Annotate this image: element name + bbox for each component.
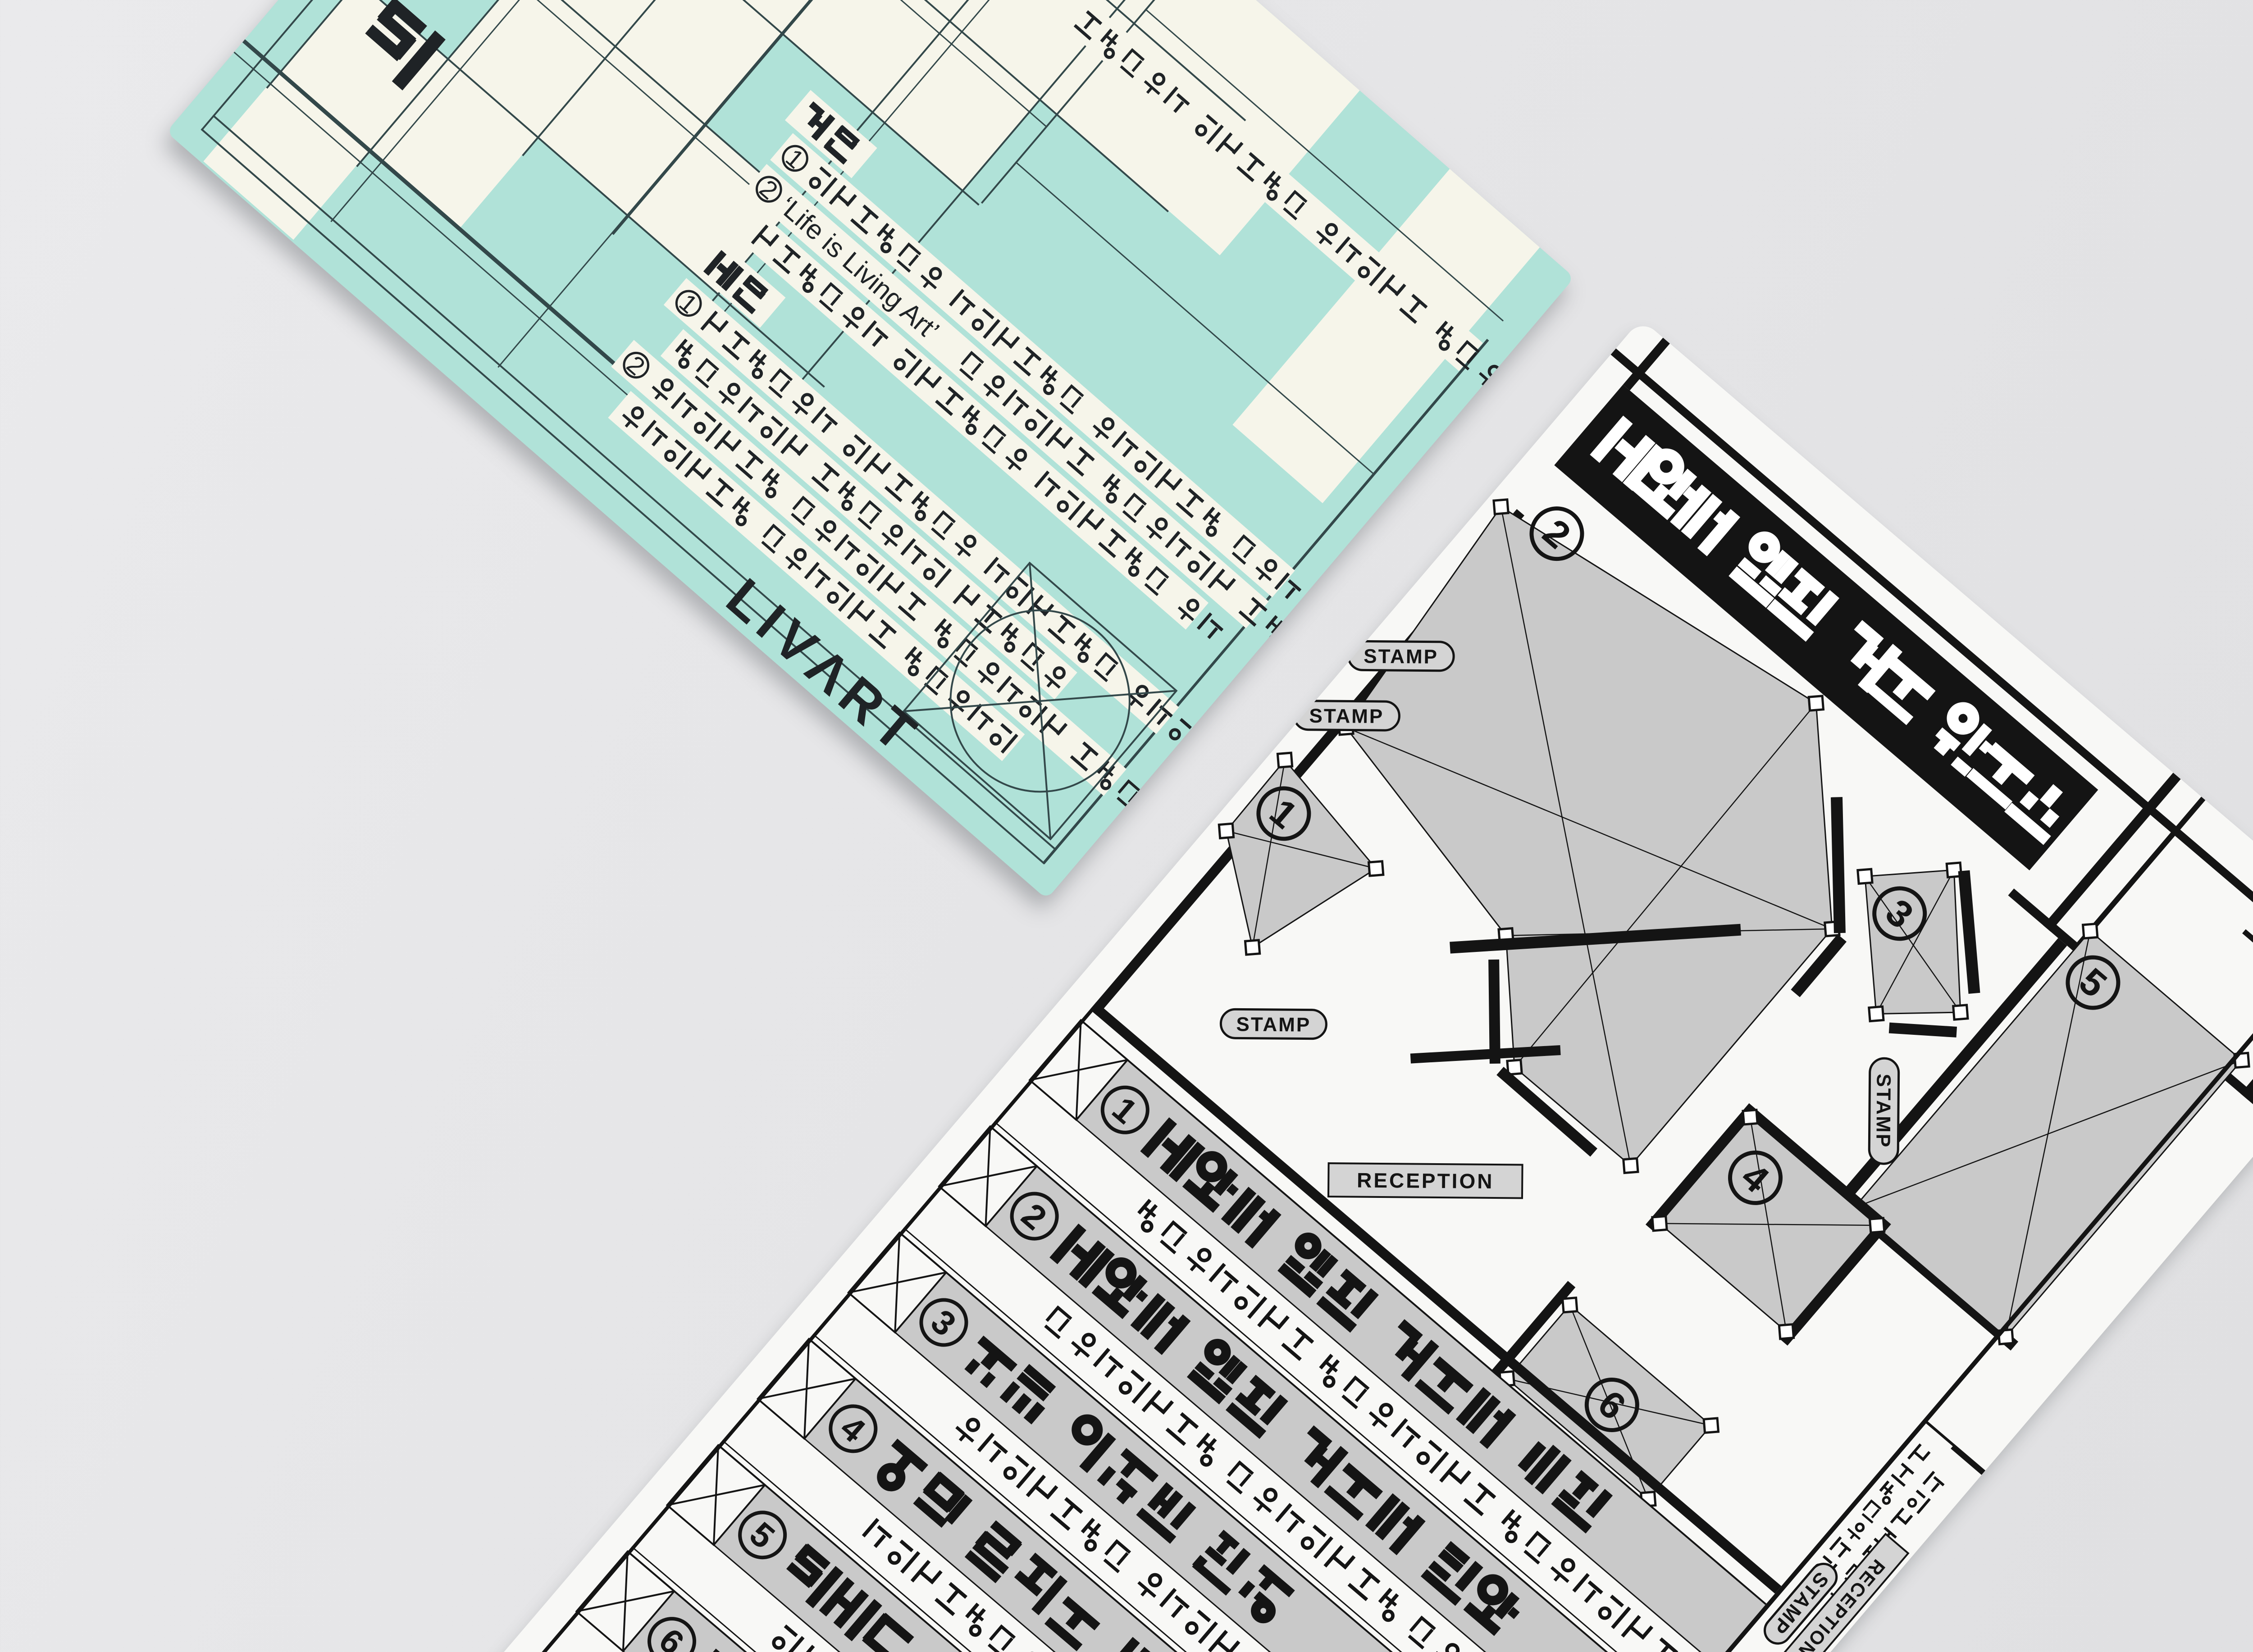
svg-text:RECEPTION: RECEPTION: [1357, 1169, 1494, 1193]
svg-text:STAMP: STAMP: [1872, 1074, 1894, 1148]
svg-text:STAMP: STAMP: [1364, 645, 1438, 668]
svg-text:STAMP: STAMP: [1236, 1013, 1311, 1036]
svg-text:STAMP: STAMP: [1309, 705, 1384, 728]
